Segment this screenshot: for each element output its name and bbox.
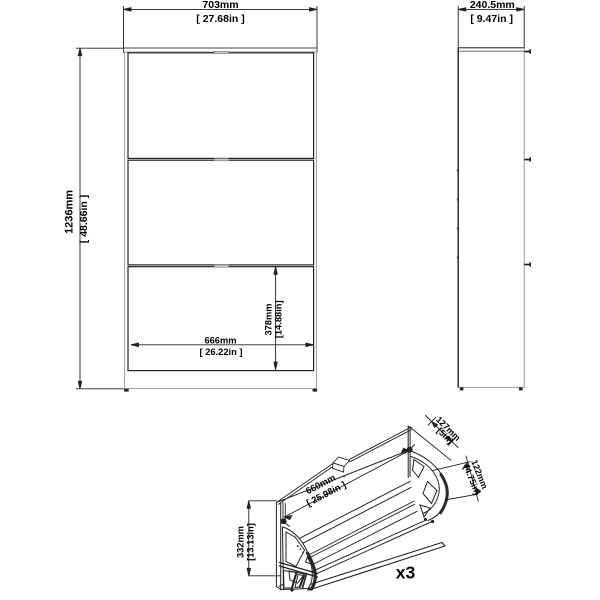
- svg-text:378mm: 378mm: [263, 303, 273, 335]
- svg-text:[ 27.68in ]: [ 27.68in ]: [196, 13, 244, 25]
- svg-text:703mm: 703mm: [202, 0, 238, 11]
- svg-text:[14.88in]: [14.88in]: [274, 300, 284, 338]
- svg-text:x3: x3: [396, 563, 416, 583]
- svg-text:[ 9.47in ]: [ 9.47in ]: [470, 13, 513, 25]
- svg-text:332mm: 332mm: [235, 526, 245, 558]
- svg-text:[ 26.22in ]: [ 26.22in ]: [200, 347, 243, 357]
- svg-text:1236mm: 1236mm: [64, 190, 76, 234]
- svg-text:[ 48.66in ]: [ 48.66in ]: [78, 195, 90, 243]
- svg-text:240.5mm: 240.5mm: [470, 0, 515, 11]
- svg-text:[13.13in]: [13.13in]: [245, 523, 255, 561]
- svg-text:666mm: 666mm: [204, 335, 236, 345]
